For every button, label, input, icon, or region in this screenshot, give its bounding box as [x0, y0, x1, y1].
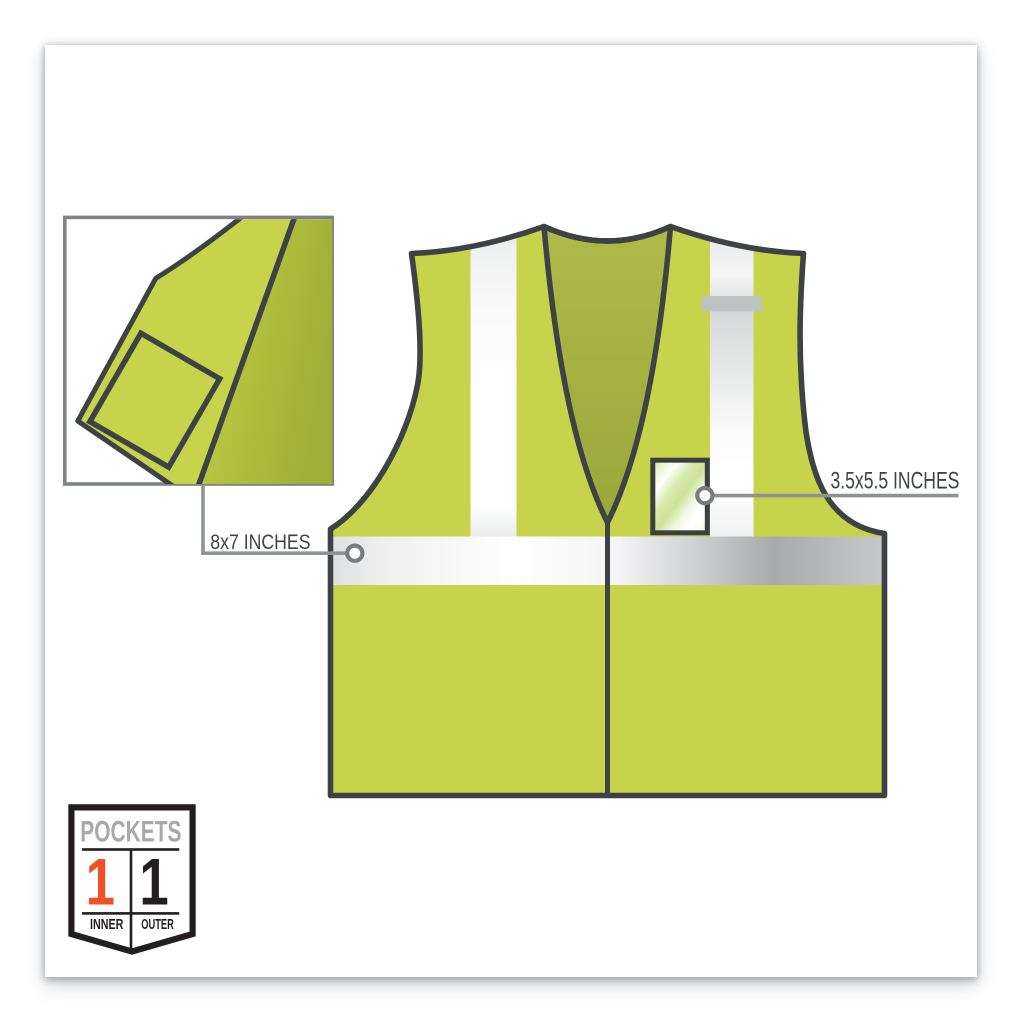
svg-text:POCKETS: POCKETS	[80, 815, 181, 848]
svg-text:OUTER: OUTER	[141, 917, 174, 933]
svg-text:8x7 INCHES: 8x7 INCHES	[210, 531, 310, 554]
svg-text:1: 1	[86, 845, 115, 919]
svg-text:INNER: INNER	[90, 917, 124, 933]
svg-text:1: 1	[139, 845, 168, 919]
svg-text:3.5x5.5 INCHES: 3.5x5.5 INCHES	[831, 467, 960, 494]
